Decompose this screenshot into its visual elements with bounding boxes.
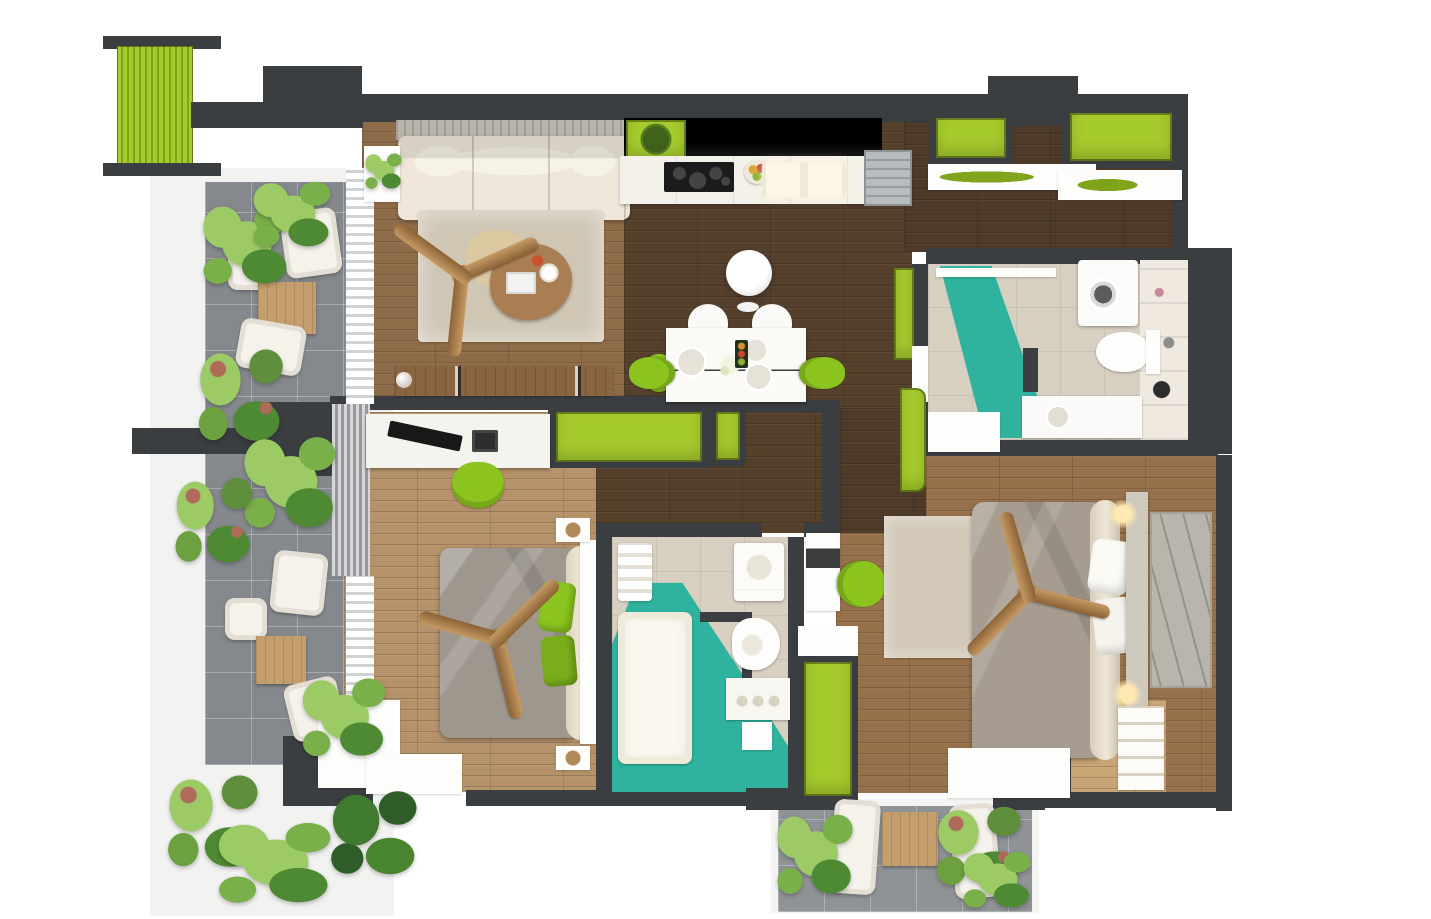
shower-head-plate xyxy=(742,722,772,750)
bed1-nightstand-1 xyxy=(556,518,590,542)
plant-balcony2-left xyxy=(762,798,870,910)
bed1-pillow-green-2 xyxy=(540,635,578,688)
plant-terrace-low xyxy=(286,662,404,772)
floor-plan-render xyxy=(0,0,1431,919)
bed2-desk-chair xyxy=(837,561,885,607)
dining-chair-green-left xyxy=(629,357,675,389)
wall-bath-top-e xyxy=(1188,248,1232,454)
desk-tablet xyxy=(472,430,498,452)
wall-bed1-s xyxy=(466,790,598,806)
bath2-towels xyxy=(618,543,652,601)
toilet-top-tank xyxy=(1146,330,1160,374)
wall-bed2-e xyxy=(1216,455,1232,811)
wall-corridor-vert xyxy=(822,406,840,536)
wall-top-left-lower xyxy=(103,163,221,176)
bathtub xyxy=(618,612,692,764)
toilet-center xyxy=(732,618,780,670)
entry-shelf-2 xyxy=(1058,170,1182,200)
plant-terrace-top-2 xyxy=(238,168,348,260)
fan-hub xyxy=(490,631,507,648)
toilet-top xyxy=(1096,332,1148,372)
kitchen-green-cabinet xyxy=(626,120,686,160)
living-sideboard xyxy=(395,366,613,396)
bath-top-vanity xyxy=(1022,396,1142,438)
bath2-counter xyxy=(726,678,790,720)
bed2-closet-front xyxy=(928,412,1000,452)
terrace-pouf-2 xyxy=(225,598,267,640)
decor-sphere xyxy=(396,372,412,388)
washing-machine xyxy=(1078,260,1138,326)
shower-partition xyxy=(936,268,1056,277)
bed1-headboard xyxy=(580,540,596,744)
plant-terrace-bottom-2 xyxy=(196,806,356,919)
sofa xyxy=(398,136,630,220)
desk-chair-green xyxy=(452,462,504,508)
bed2-shelf-top xyxy=(798,626,858,658)
cooktop xyxy=(664,162,734,192)
wall-bath2-stub-h xyxy=(700,612,744,622)
bed2-lamp-glow-2 xyxy=(1110,680,1144,708)
bed2-lamp-glow-1 xyxy=(1106,500,1140,528)
kitchen-sink xyxy=(762,163,846,197)
bed1-nightstand-2 xyxy=(556,746,590,770)
plant-balcony2-right-2 xyxy=(950,840,1046,919)
bed2-rug xyxy=(884,516,980,658)
bed2-desk xyxy=(806,533,840,611)
window-mullions-upper xyxy=(346,168,374,404)
hall-storage-green-small xyxy=(716,412,740,460)
terrace-side-table xyxy=(256,636,306,684)
sofa-side-plant xyxy=(358,146,410,196)
dining-chair-green-right xyxy=(799,357,845,389)
bath2-sink xyxy=(734,543,784,601)
fan-hub xyxy=(1020,585,1037,602)
corridor-green-wardrobe xyxy=(900,388,926,492)
green-vertical-blinds xyxy=(117,46,193,164)
bath-top-inner-stub xyxy=(1023,348,1038,392)
fan-hub xyxy=(453,266,471,284)
pendant-lamp xyxy=(726,250,772,296)
nook-steps xyxy=(1118,706,1164,790)
hall-storage-green xyxy=(556,412,702,462)
wall-bath2-n1 xyxy=(612,523,762,537)
entry-cabinet-green-1 xyxy=(936,118,1006,158)
bed2-wall-art xyxy=(1150,512,1212,688)
laptop xyxy=(506,272,536,294)
bed2-cabinet-green xyxy=(804,662,852,796)
plant-terrace-mid-3 xyxy=(160,460,270,580)
bath-top-green-panel xyxy=(894,268,914,360)
wall-bath2-w xyxy=(596,523,612,806)
sushi-tray xyxy=(735,340,748,368)
entry-cabinet-green-2 xyxy=(1070,113,1172,161)
fridge xyxy=(864,150,912,206)
terrace-armchair-3 xyxy=(269,549,329,616)
